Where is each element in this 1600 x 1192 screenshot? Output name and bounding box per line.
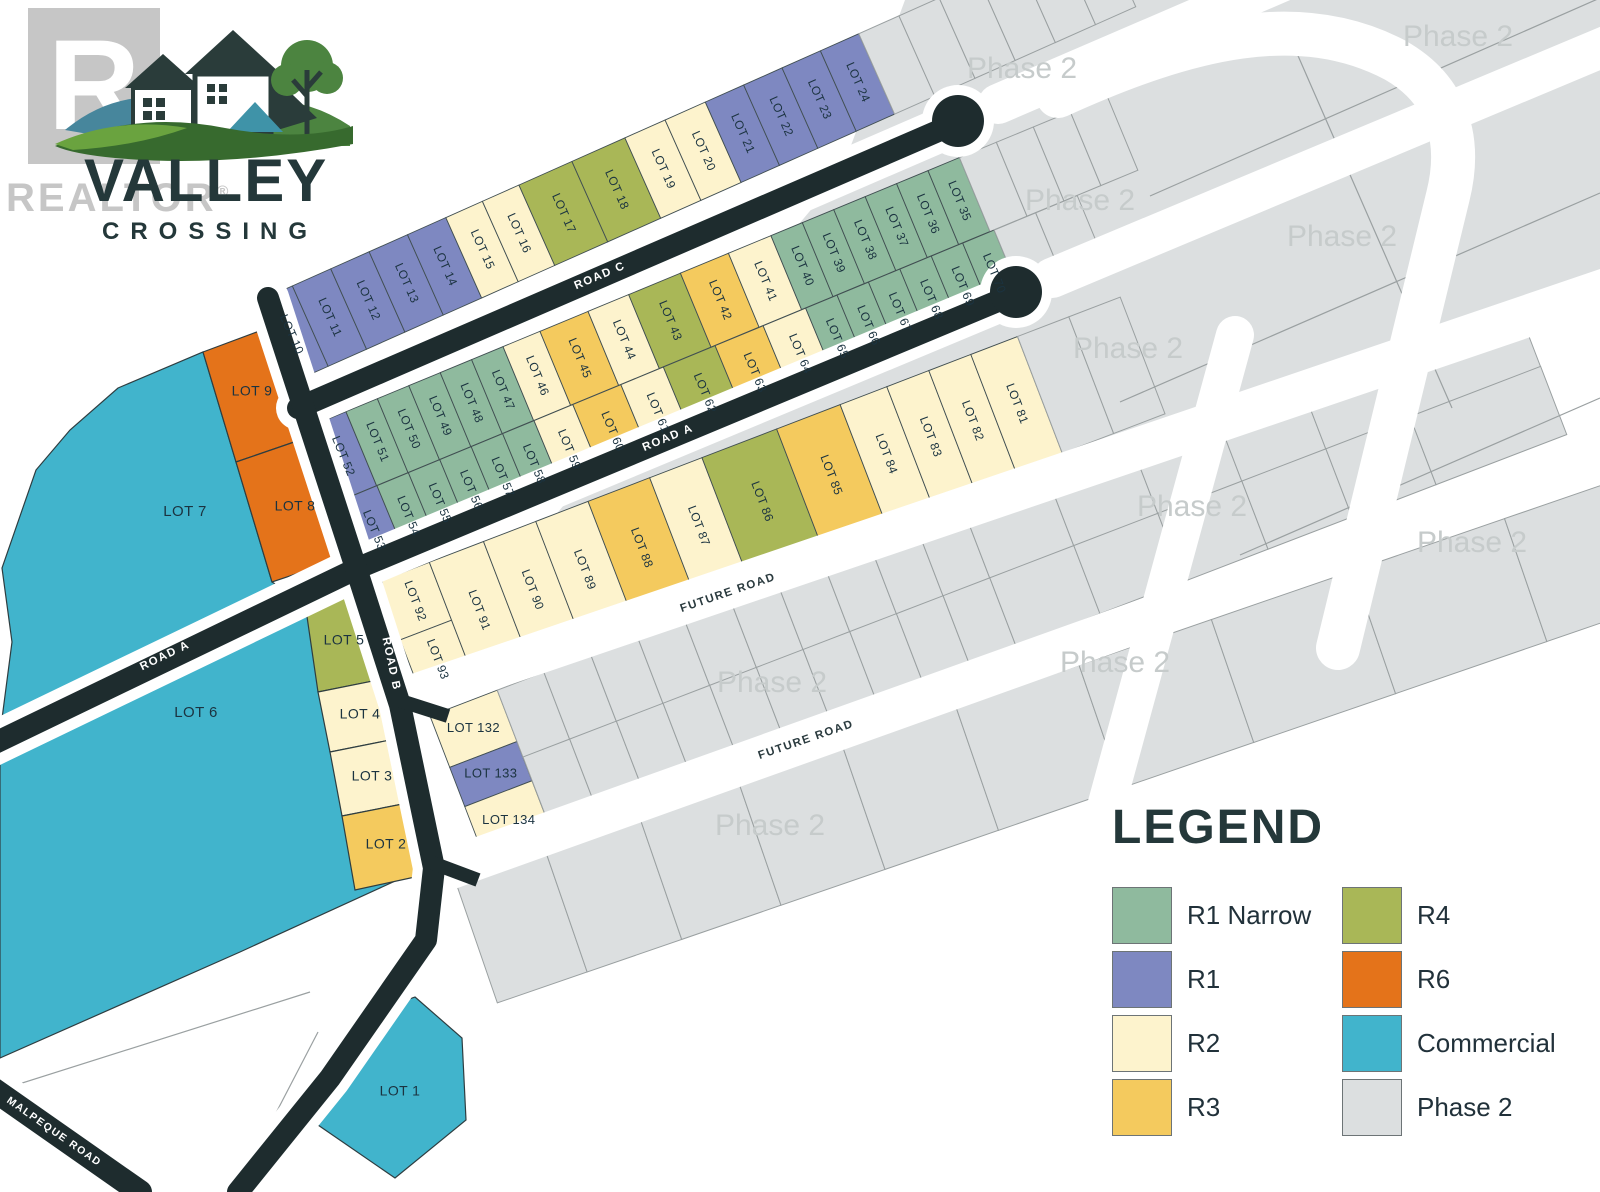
phase2-watermark: Phase 2 [1403, 20, 1513, 53]
legend-label: R3 [1187, 1092, 1220, 1123]
legend-item-r1-narrow: R1 Narrow [1112, 883, 1342, 947]
legend-swatch-r4-icon [1342, 887, 1402, 944]
lot-label-lot-6: LOT 6 [174, 704, 217, 721]
lot-label-lot-5: LOT 5 [324, 632, 365, 648]
legend-item-r4: R4 [1342, 883, 1600, 947]
phase2-watermark: Phase 2 [717, 666, 827, 699]
legend-swatch-r3-icon [1112, 1079, 1172, 1136]
legend-swatch-r1n-icon [1112, 887, 1172, 944]
legend-swatch-ph2-icon [1342, 1079, 1402, 1136]
phase2-watermark: Phase 2 [967, 52, 1077, 85]
legend-label: R1 Narrow [1187, 900, 1311, 931]
legend-item-r2: R2 [1112, 1011, 1342, 1075]
legend-label: R6 [1417, 964, 1450, 995]
phase2-watermark: Phase 2 [1287, 220, 1397, 253]
lot-label-lot-2: LOT 2 [366, 836, 407, 852]
legend-item-r6: R6 [1342, 947, 1600, 1011]
legend-swatch-r6-icon [1342, 951, 1402, 1008]
legend-item-commercial: Commercial [1342, 1011, 1600, 1075]
lot-label-lot-9: LOT 9 [232, 383, 273, 399]
phase2-watermark: Phase 2 [1137, 490, 1247, 523]
site-plan-page: Phase 2Phase 2Phase 2Phase 2Phase 2Phase… [0, 0, 1600, 1192]
phase2-watermark: Phase 2 [1073, 332, 1183, 365]
phase2-watermark: Phase 2 [1417, 526, 1527, 559]
phase2-watermark: Phase 2 [1060, 646, 1170, 679]
legend-item-r1: R1 [1112, 947, 1342, 1011]
legend-label: Commercial [1417, 1028, 1556, 1059]
valley-crossing-logo: R REALTOR® VALLEY CROSSING [0, 0, 380, 280]
phase2-watermark: Phase 2 [715, 809, 825, 842]
lot-label-lot-1: LOT 1 [380, 1083, 421, 1099]
legend-item-phase-2: Phase 2 [1342, 1075, 1600, 1139]
legend: LEGEND R1 NarrowR4R1R6R2CommercialR3Phas… [1090, 800, 1590, 1139]
lot-label-lot-7: LOT 7 [163, 503, 206, 520]
legend-swatch-r1-icon [1112, 951, 1172, 1008]
logo-title: VALLEY [84, 146, 328, 215]
lot-label-lot-4: LOT 4 [340, 706, 381, 722]
phase2-watermark: Phase 2 [1025, 184, 1135, 217]
lot-label-lot-134: LOT 134 [482, 812, 535, 827]
lot-label-lot-8: LOT 8 [275, 498, 316, 514]
lot-label-lot-3: LOT 3 [352, 768, 393, 784]
legend-swatch-com-icon [1342, 1015, 1402, 1072]
legend-grid: R1 NarrowR4R1R6R2CommercialR3Phase 2 [1112, 883, 1590, 1139]
lot-label-lot-132: LOT 132 [447, 720, 500, 735]
legend-swatch-r2-icon [1112, 1015, 1172, 1072]
legend-item-r3: R3 [1112, 1075, 1342, 1139]
road-c-culdesac [932, 95, 984, 147]
legend-label: R2 [1187, 1028, 1220, 1059]
legend-label: Phase 2 [1417, 1092, 1512, 1123]
lot-label-lot-133: LOT 133 [464, 765, 517, 780]
legend-label: R1 [1187, 964, 1220, 995]
legend-label: R4 [1417, 900, 1450, 931]
legend-title: LEGEND [1112, 800, 1590, 855]
logo-subtitle: CROSSING [102, 218, 318, 246]
